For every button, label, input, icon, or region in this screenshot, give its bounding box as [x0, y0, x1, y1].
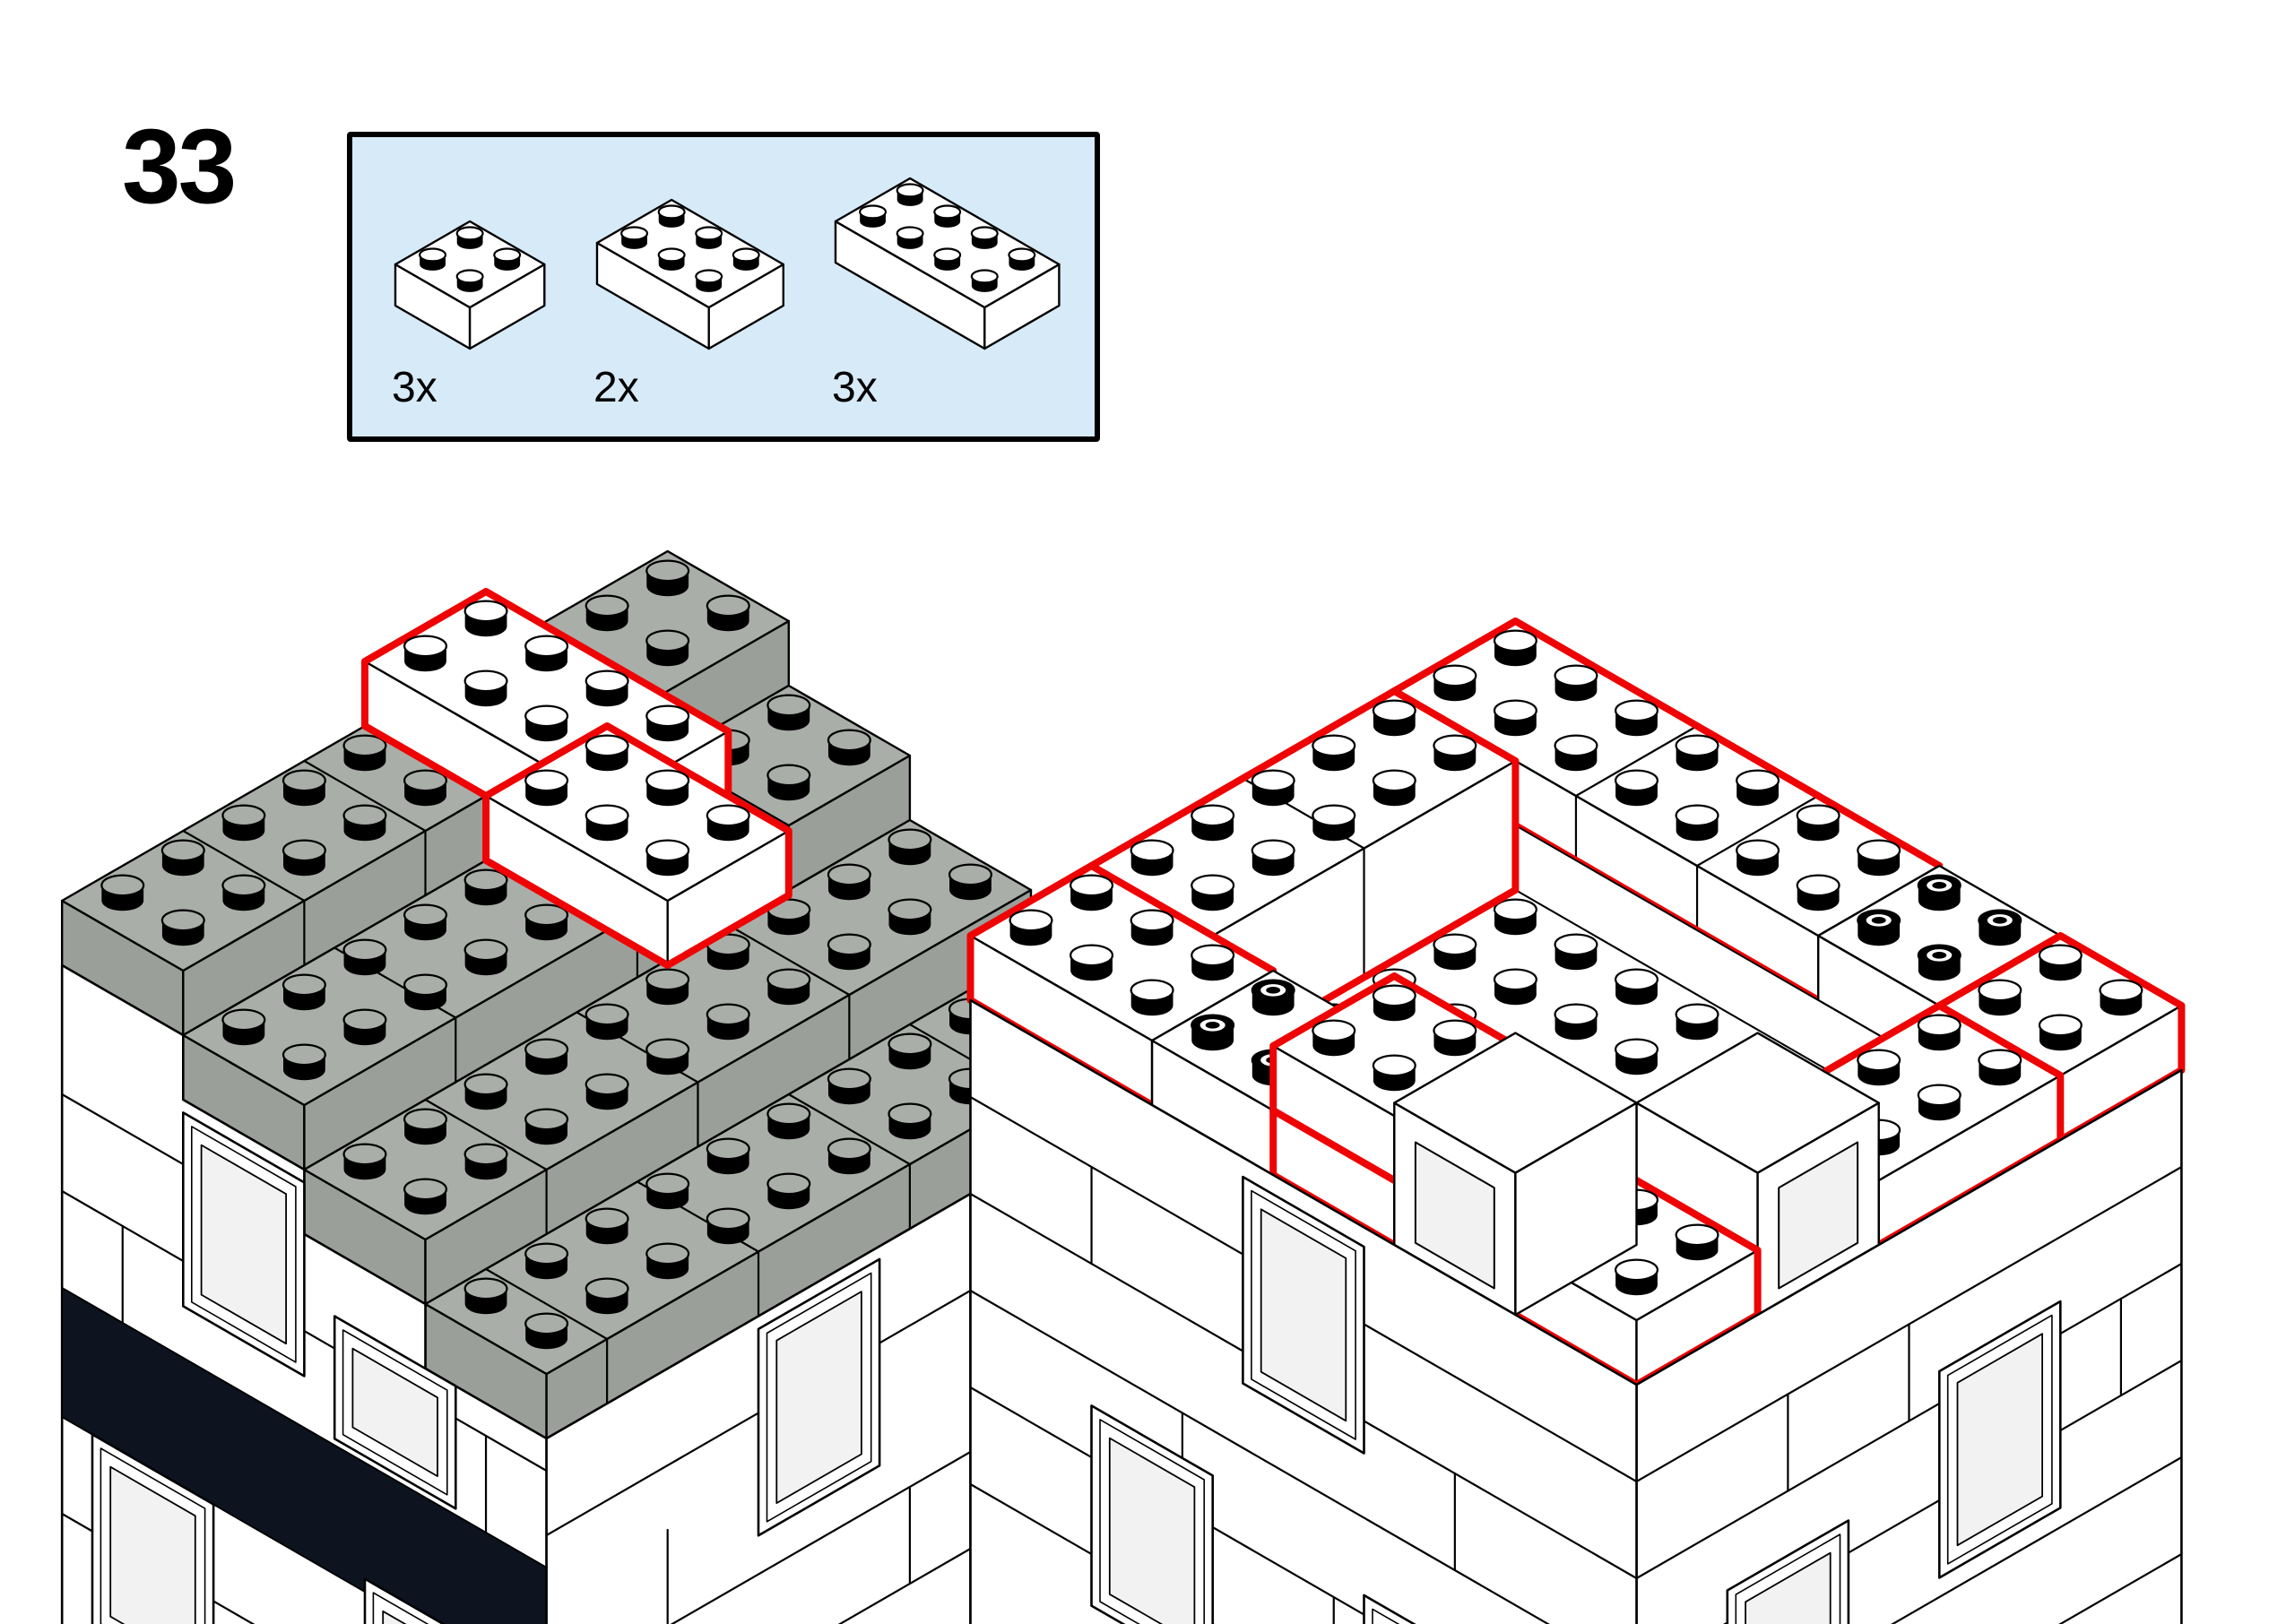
- building-illustration: [0, 0, 2295, 1624]
